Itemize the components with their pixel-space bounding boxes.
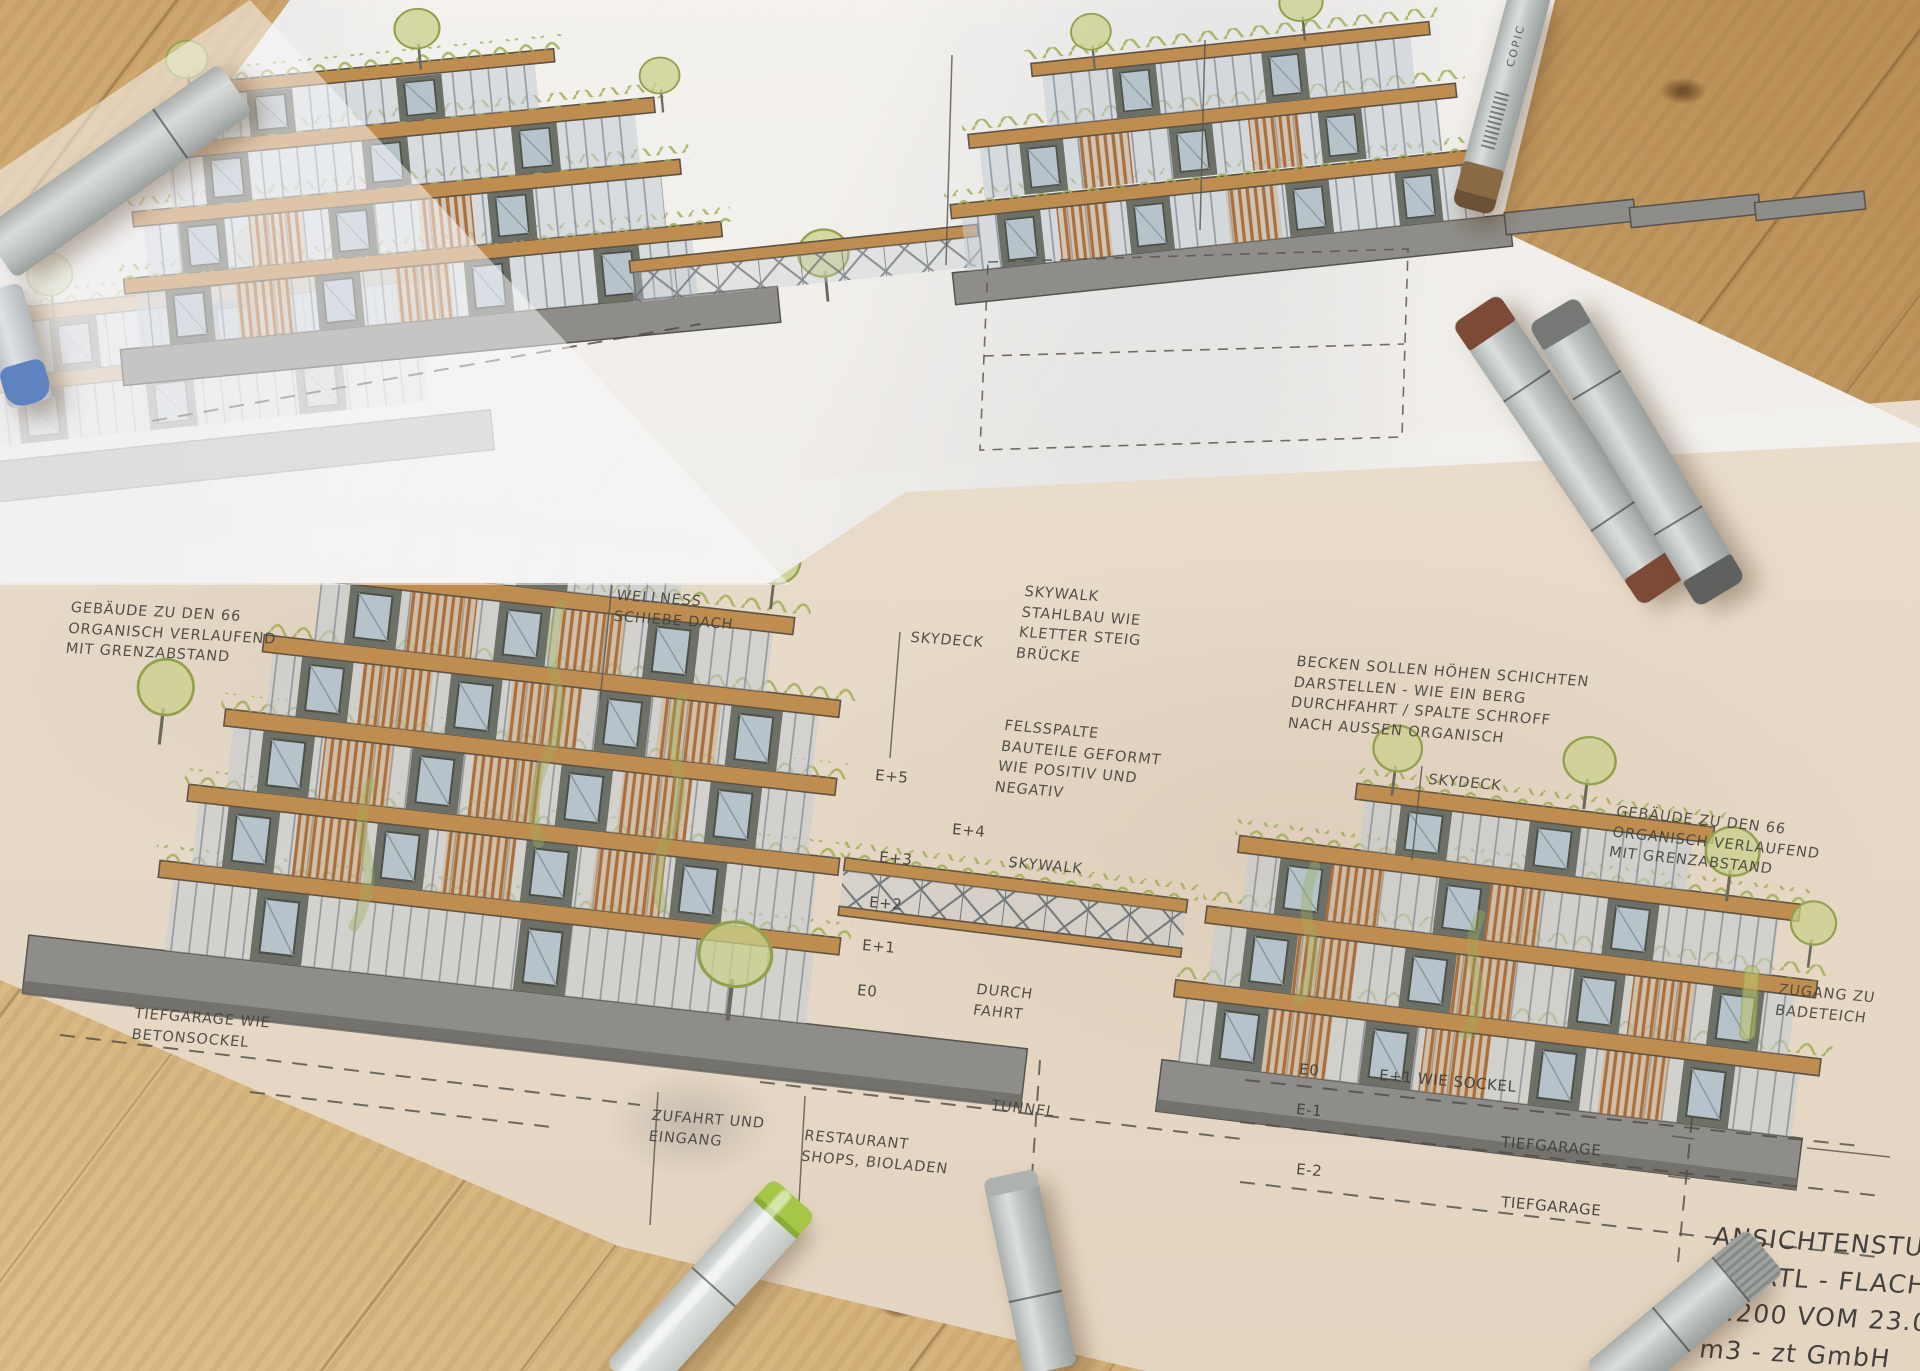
marker-seam	[1652, 1307, 1691, 1353]
level-label-e0-right: E0	[1298, 1060, 1320, 1080]
floor-label-e3: E+3	[878, 848, 913, 869]
floor-label-e4: E+4	[951, 820, 986, 841]
level-label-e-minus-1: E-1	[1295, 1100, 1323, 1120]
floor-label-e5: E+5	[874, 766, 909, 787]
level-label-e-minus-2: E-2	[1295, 1160, 1323, 1180]
marker-seam	[1503, 370, 1551, 403]
floor-label-e1: E+1	[861, 936, 896, 957]
marker-seam	[1572, 370, 1621, 401]
annotation-durchfahrt: DURCH FAHRT	[972, 980, 1035, 1026]
marker-seam	[1009, 1290, 1062, 1303]
annotation-gebaeude-left: GEBÄUDE ZU DEN 66 ORGANISCH VERLAUFEND M…	[64, 598, 279, 670]
annotation-wellness: WELLNESS SCHIEBE DACH	[612, 586, 737, 635]
marker-seam	[1654, 505, 1703, 536]
copic-brand-label: COPIC	[1504, 23, 1528, 69]
marker-seam	[1591, 499, 1639, 532]
floor-label-e0: E0	[856, 981, 878, 1001]
photo-architectural-sketches: .slab{fill:#c08d50;stroke:#5d5446;stroke…	[0, 0, 1920, 1371]
marker-cap-seam	[152, 109, 188, 159]
marker-barcode	[1481, 90, 1510, 150]
floor-label-e2: E+2	[868, 893, 903, 914]
annotation-skywalk-stahlbau: SKYWALK STAHLBAU WIE KLETTER STEIG BRÜCK…	[1015, 582, 1149, 672]
wood-knot	[1660, 78, 1706, 104]
annotation-zufahrt: ZUFAHRT UND EINGANG	[647, 1106, 766, 1155]
annotation-zugang-badeteich: ZUGANG ZU BADETEICH	[1774, 980, 1877, 1029]
annotation-felsspalte: FELSSPALTE BAUTEILE GEFORMT WIE POSITIV …	[993, 716, 1166, 811]
